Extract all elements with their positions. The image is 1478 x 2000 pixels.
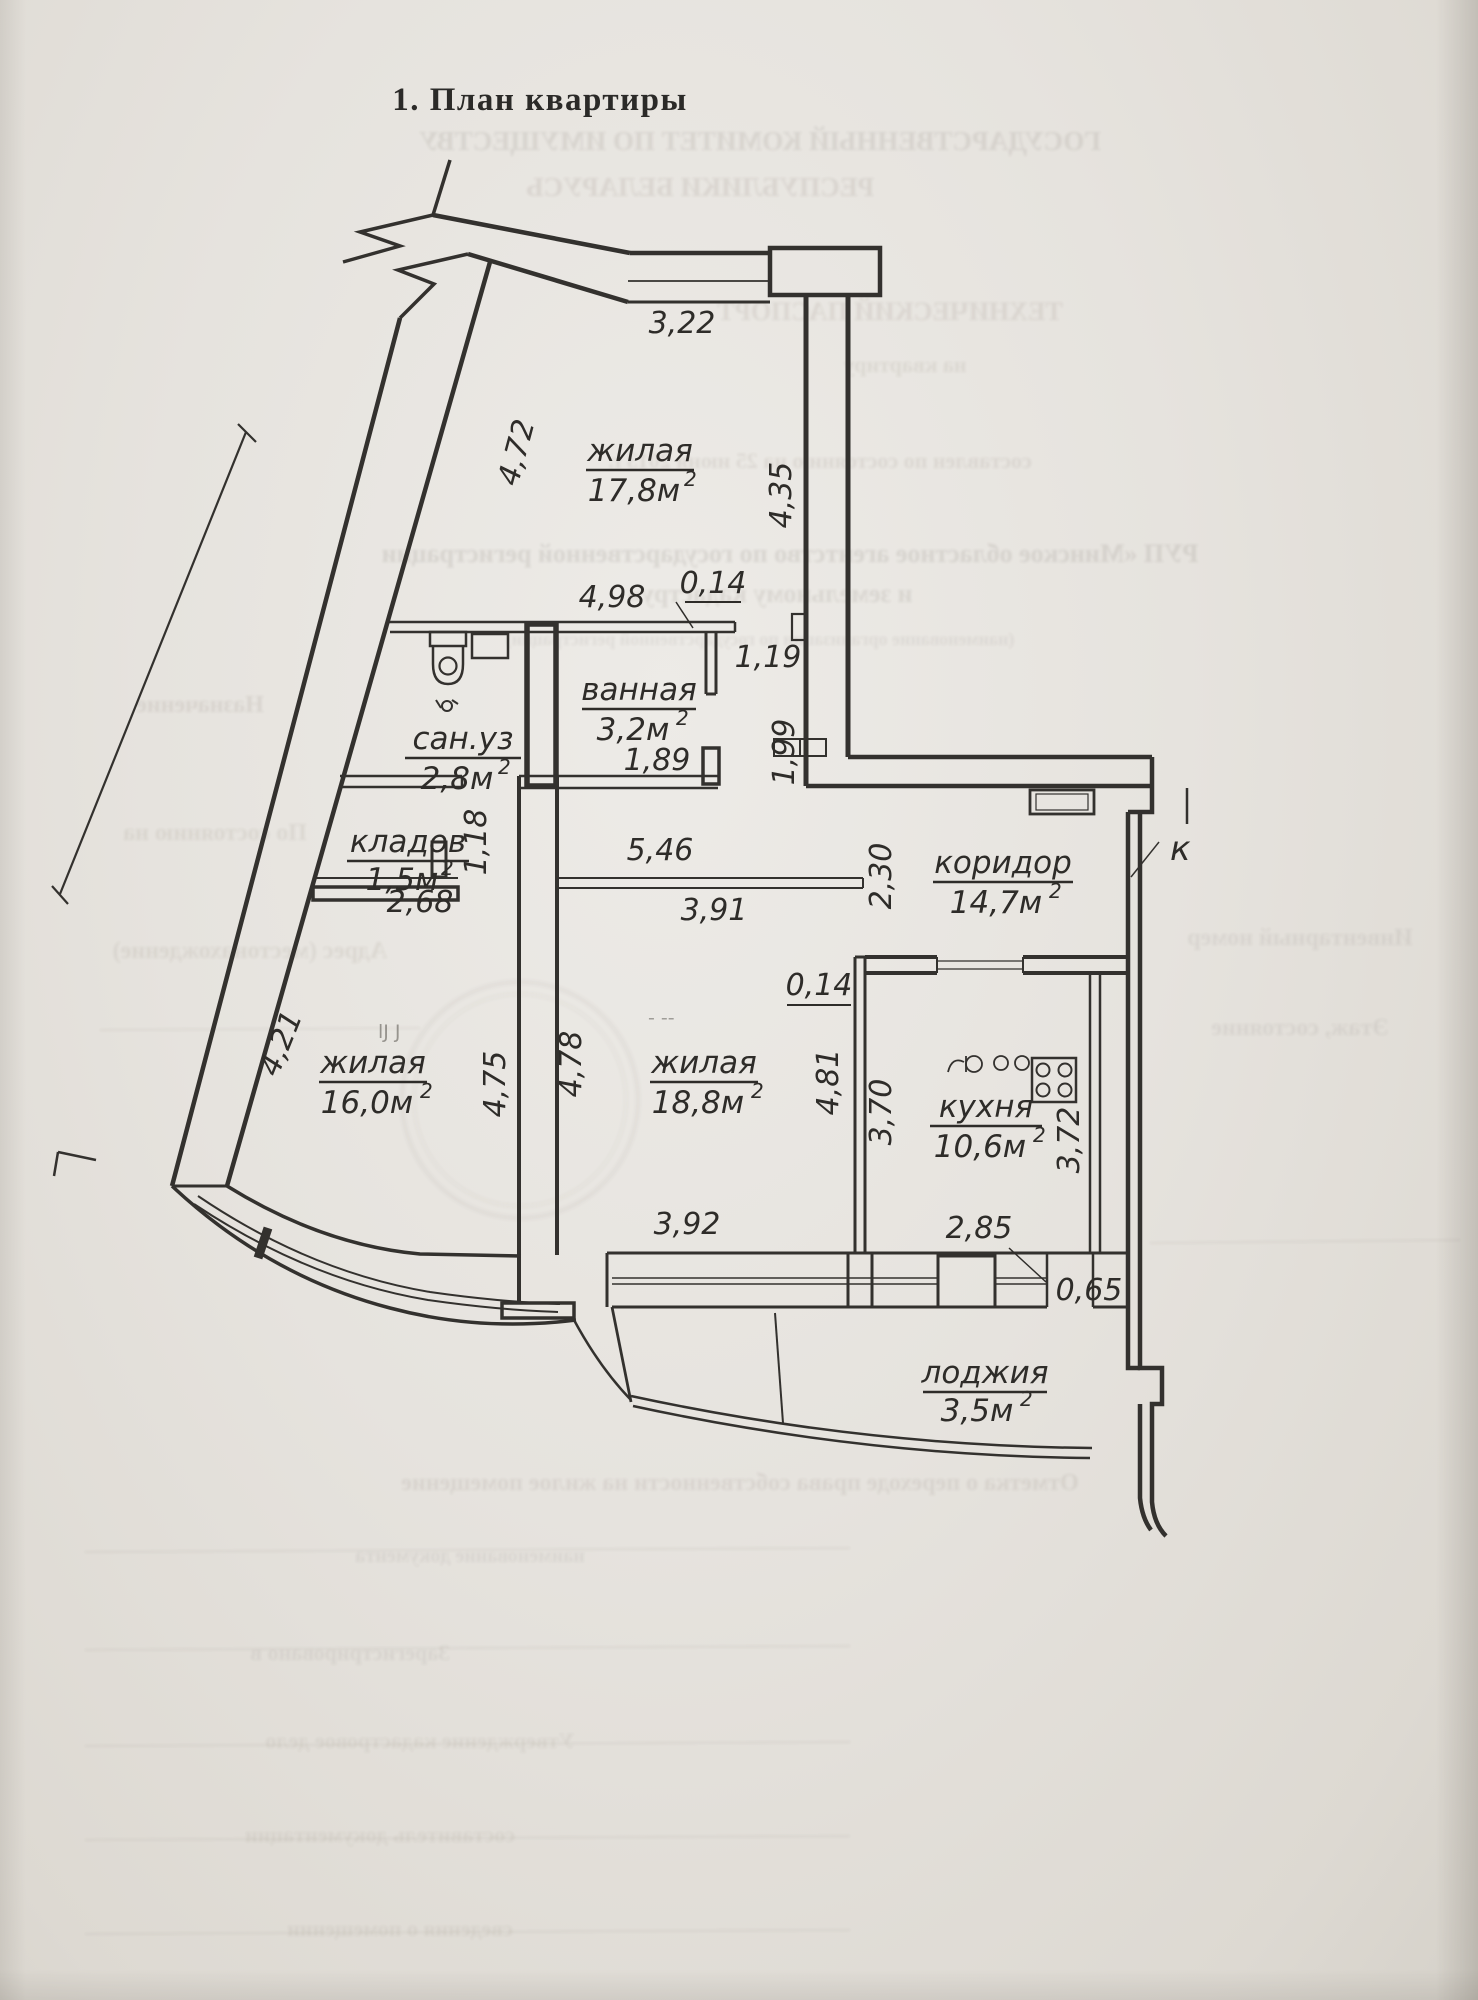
sink-icon [472, 634, 508, 658]
dim-beam: 5,46 [627, 833, 694, 868]
dim-bath-top: 4,98 [579, 580, 646, 615]
svg-text:Инвентарный номер: Инвентарный номер [1187, 925, 1412, 951]
scan-edge-shadow-right [1436, 0, 1478, 2000]
svg-text:16,0м: 16,0м [321, 1085, 413, 1121]
dim-loggia-jamb: 0,65 [1056, 1273, 1123, 1308]
dim-living-mid-window: 3,92 [654, 1207, 721, 1242]
svg-text:18,8м: 18,8м [652, 1085, 744, 1121]
dim-closet-depth: 1,18 [459, 809, 494, 876]
svg-text:14,7м: 14,7м [950, 885, 1042, 921]
svg-text:2: 2 [684, 467, 697, 491]
svg-text:2: 2 [420, 1079, 433, 1103]
svg-text:лоджия: лоджия [921, 1355, 1049, 1391]
svg-text:Отметка о переходе права собст: Отметка о переходе права собственности н… [401, 1470, 1079, 1496]
svg-text:0,14: 0,14 [680, 566, 747, 601]
room-label-bathroom: ванная 3,2м 2 [581, 672, 696, 748]
wall-break-icon [343, 160, 468, 318]
svg-text:0,14: 0,14 [786, 968, 853, 1003]
svg-text:Этаж, состояние: Этаж, состояние [1211, 1015, 1389, 1041]
dim-kitchen-left: 3,70 [864, 1079, 899, 1146]
svg-text:РУП «Минское областное агентст: РУП «Минское областное агентство по госу… [382, 539, 1199, 568]
dim-opening: 3,91 [681, 893, 748, 928]
svg-text:17,8м: 17,8м [588, 473, 680, 509]
toilet-icon [430, 632, 466, 684]
svg-text:наименование документа: наименование документа [355, 1545, 584, 1567]
dim-living-mid-left: 4,78 [554, 1031, 589, 1098]
window-top-icon [628, 253, 770, 302]
page-title: 1. План квартиры [392, 82, 688, 118]
dim-partition-thk: 0,14 [786, 968, 853, 1005]
room-label-corridor: коридор 14,7м 2 [933, 845, 1073, 921]
room-label-wc: сан.уз 2,8м 2 [405, 721, 521, 797]
window-bottom-icon [607, 1253, 1128, 1307]
stove-icon [1032, 1058, 1076, 1102]
svg-text:2: 2 [1049, 879, 1062, 903]
svg-text:3,5м: 3,5м [941, 1393, 1014, 1429]
bay-window-icon [54, 1152, 576, 1324]
scanned-floor-plan-page: ГОСУДАРСТВЕННЫЙ КОМИТЕТ ПО ИМУЩЕСТВУ РЕС… [0, 0, 1478, 2000]
dim-kitchen-right: 3,72 [1052, 1107, 1087, 1174]
svg-text:2,8м: 2,8м [421, 761, 494, 797]
svg-text:сведения о помещении: сведения о помещении [287, 1916, 513, 1941]
dim-niche-height: 1,99 [767, 719, 802, 786]
pencil-mark-2: - -- [648, 1007, 675, 1029]
svg-text:сан.уз: сан.уз [413, 721, 514, 757]
svg-text:Утверждение кадастровое дело: Утверждение кадастровое дело [265, 1728, 575, 1753]
dim-living-top-right: 4,35 [764, 462, 799, 529]
dim-bath-stub: 1,19 [735, 640, 802, 675]
kitchen-sink-icon [948, 1056, 1029, 1072]
svg-text:2,85: 2,85 [946, 1211, 1013, 1246]
svg-text:2: 2 [751, 1079, 764, 1103]
svg-text:жилая: жилая [319, 1045, 426, 1081]
svg-text:на квартиру: на квартиру [843, 352, 966, 377]
svg-text:ГОСУДАРСТВЕННЫЙ КОМИТЕТ ПО ИМУ: ГОСУДАРСТВЕННЫЙ КОМИТЕТ ПО ИМУЩЕСТВУ [419, 126, 1101, 156]
svg-text:составитель документации: составитель документации [245, 1822, 515, 1847]
room-label-living-mid: жилая 18,8м 2 [650, 1045, 764, 1121]
svg-text:коридор: коридор [934, 845, 1072, 881]
svg-text:Назначение: Назначение [136, 692, 264, 718]
room-label-loggia: лоджия 3,5м 2 [921, 1355, 1049, 1429]
entrance-door-icon [1030, 790, 1094, 814]
dim-entry-wall: 4,72 [491, 416, 542, 490]
svg-text:2: 2 [441, 856, 454, 880]
room-label-living-top: жилая 17,8м 2 [586, 433, 697, 509]
svg-text:2: 2 [1033, 1123, 1046, 1147]
dim-corridor-left: 2,30 [864, 843, 899, 910]
dim-bath-wall-thk: 0,14 [676, 566, 746, 628]
dim-closet-width: 2,68 [387, 885, 454, 920]
svg-text:Зарегистрировано в: Зарегистрировано в [250, 1640, 450, 1665]
svg-text:2: 2 [1020, 1387, 1033, 1411]
svg-text:РЕСПУБЛИКИ БЕЛАРУСЬ: РЕСПУБЛИКИ БЕЛАРУСЬ [526, 172, 875, 202]
svg-text:2: 2 [498, 755, 511, 779]
entry-mark: к [1170, 829, 1191, 869]
faucet-icon [436, 700, 458, 711]
room-label-living-left: жилая 16,0м 2 [319, 1045, 433, 1121]
dim-living-left-wall: 4,21 [252, 1006, 309, 1081]
svg-text:Адрес (местонахождение): Адрес (местонахождение) [113, 938, 388, 964]
scan-edge-shadow-bottom [0, 1970, 1478, 2000]
svg-text:жилая: жилая [650, 1045, 757, 1081]
pencil-mark-1: lJ J [378, 1021, 401, 1043]
svg-text:жилая: жилая [586, 433, 693, 469]
dim-living-left-right: 4,75 [478, 1051, 513, 1118]
scan-edge-shadow-left [0, 0, 26, 2000]
svg-text:10,6м: 10,6м [934, 1129, 1026, 1165]
room-label-kitchen: кухня 10,6м 2 [930, 1089, 1046, 1165]
floor-plan-drawing: ГОСУДАРСТВЕННЫЙ КОМИТЕТ ПО ИМУЩЕСТВУ РЕС… [0, 0, 1478, 2000]
svg-text:По состоянию на: По состоянию на [123, 820, 307, 846]
dim-living-mid-right: 4,81 [811, 1049, 846, 1116]
svg-text:кухня: кухня [939, 1089, 1033, 1125]
svg-text:кладов: кладов [350, 824, 466, 860]
svg-text:ванная: ванная [581, 672, 696, 708]
dim-top-window: 3,22 [649, 306, 716, 341]
svg-text:и земельному кадастру»: и земельному кадастру» [628, 579, 913, 608]
dim-bath-width: 1,89 [624, 743, 691, 778]
svg-text:2: 2 [676, 706, 689, 730]
